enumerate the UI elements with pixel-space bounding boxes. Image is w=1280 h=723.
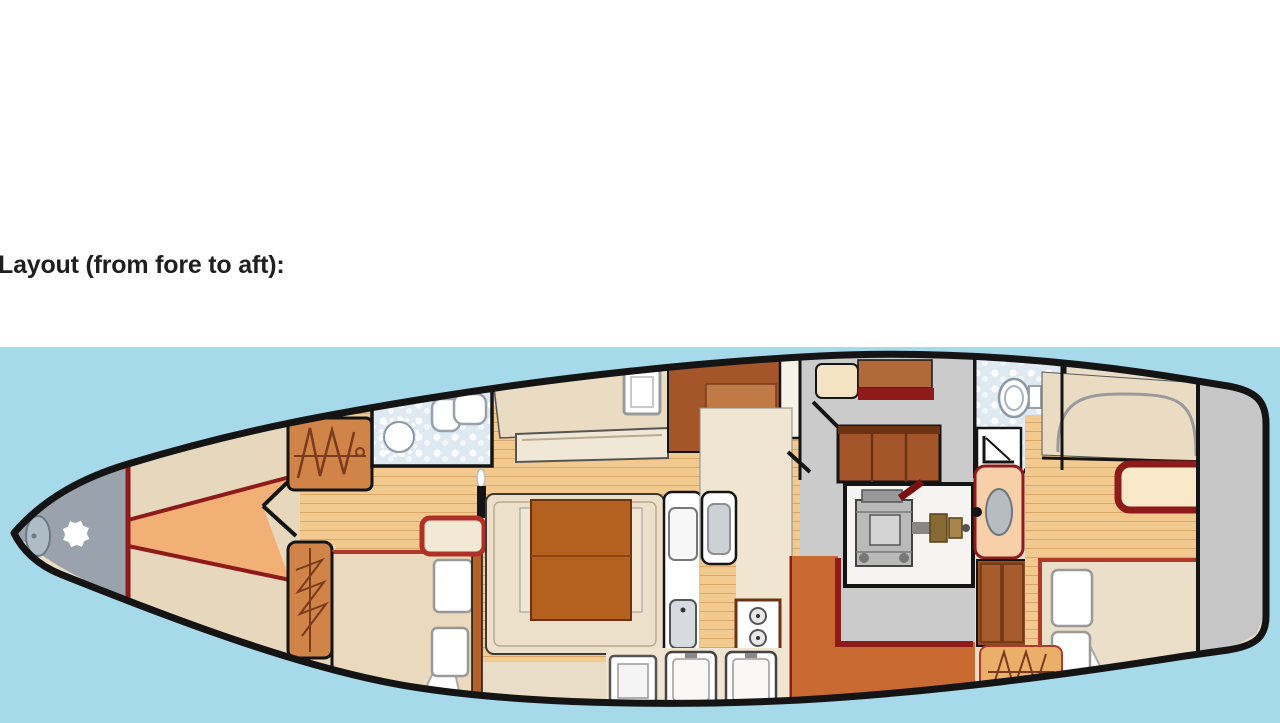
pillow [434,560,472,612]
berth-shelf [516,428,668,462]
forward-wardrobe [288,418,372,490]
saloon-table [531,500,631,620]
hatch-dot [32,534,37,539]
nav-seat [816,364,858,398]
pillow [432,628,468,676]
saloon [486,494,664,654]
armrest [520,508,531,612]
pillow [1052,570,1092,626]
cabin-bulkhead [472,552,482,704]
page-heading: Layout (from fore to aft): [0,251,284,280]
engine-room [845,482,973,586]
armrest [631,508,642,612]
mast-icon [477,469,486,518]
nav-desk [858,360,932,388]
drawer-unit [838,426,940,482]
yacht-layout-diagram [0,347,1280,723]
toilet-icon [999,379,1029,417]
shaft-coupling [930,514,947,542]
sink-icon [670,600,696,648]
corridor-floor-patch [300,487,336,545]
transom-locker [1198,378,1266,656]
document-page: Layout (from fore to aft): [0,0,1280,723]
corridor-seat [422,518,484,554]
galley-floor [700,560,736,660]
sink-icon [384,422,414,452]
cooler-icon [669,508,697,560]
basin-icon [986,489,1012,535]
